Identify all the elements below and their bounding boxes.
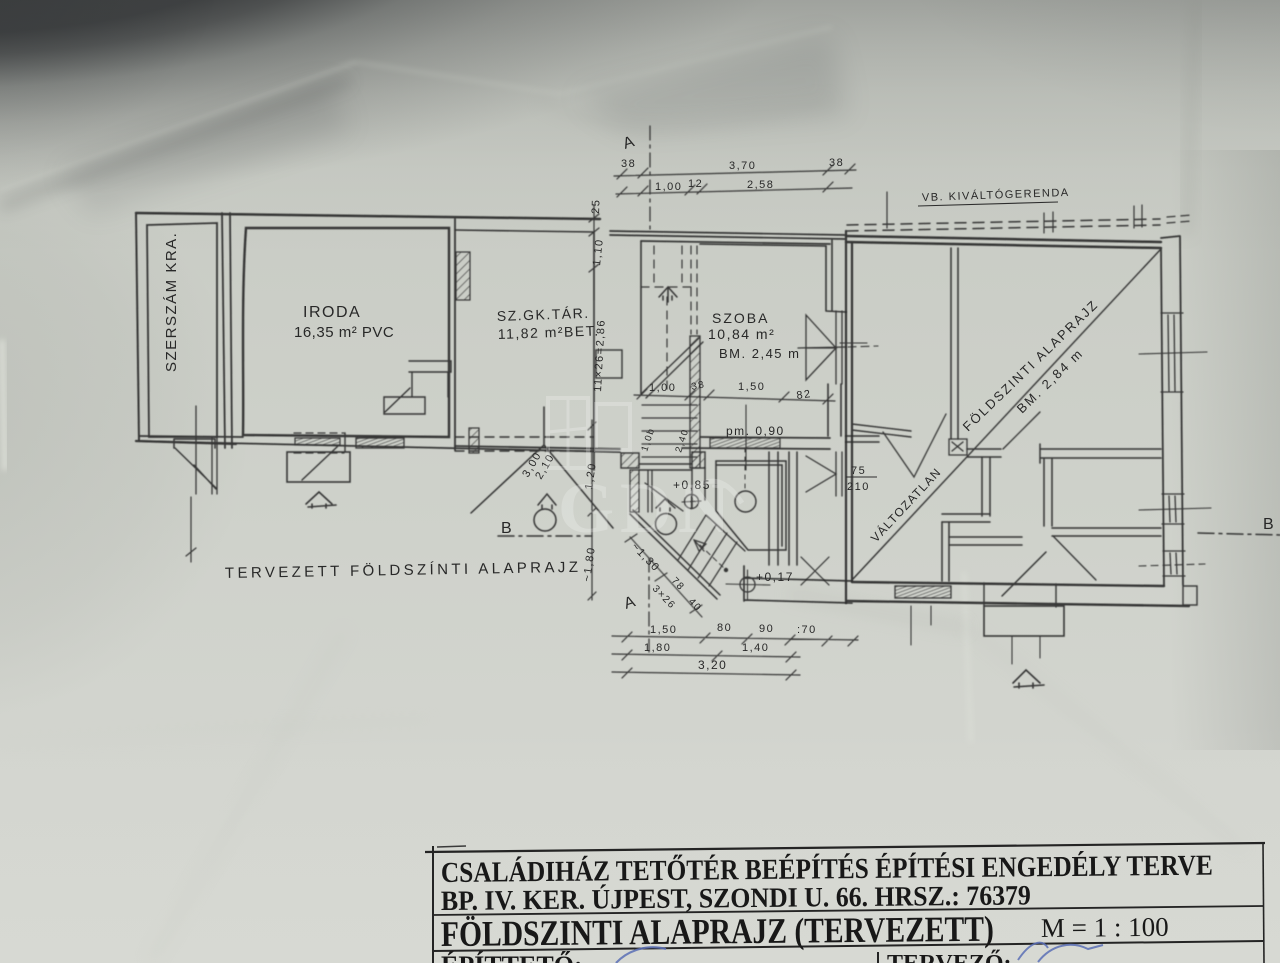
- svg-text:B: B: [501, 520, 513, 537]
- svg-text:80: 80: [717, 622, 732, 634]
- svg-text:3,70: 3,70: [729, 160, 756, 172]
- svg-text:210: 210: [847, 481, 870, 493]
- svg-text:38: 38: [829, 157, 844, 169]
- svg-text:M = 1 : 100: M = 1 : 100: [1041, 912, 1169, 943]
- svg-text:12: 12: [688, 178, 703, 190]
- svg-text:1,40: 1,40: [742, 642, 769, 654]
- svg-text:82: 82: [796, 388, 813, 402]
- svg-text:B: B: [1263, 516, 1275, 533]
- svg-text:10,84 m²: 10,84 m²: [708, 326, 775, 342]
- svg-text:2,58: 2,58: [747, 179, 774, 191]
- svg-text:1,00: 1,00: [655, 181, 682, 193]
- svg-text:GDN: GDN: [558, 468, 736, 548]
- svg-text:1,00: 1,00: [649, 382, 676, 394]
- svg-text:16,35 m² PVC: 16,35 m² PVC: [294, 324, 394, 341]
- svg-text:1,80: 1,80: [644, 642, 671, 654]
- svg-text:3,20: 3,20: [698, 658, 727, 672]
- svg-text:38: 38: [621, 158, 636, 170]
- svg-text:IRODA: IRODA: [303, 304, 361, 321]
- svg-text:90: 90: [759, 623, 774, 635]
- svg-text:SZ.GK.TÁR.: SZ.GK.TÁR.: [497, 305, 590, 324]
- svg-text:1,50: 1,50: [650, 624, 677, 636]
- svg-text:FÖLDSZINTI ALAPRAJZ (TERVEZETT: FÖLDSZINTI ALAPRAJZ (TERVEZETT): [441, 909, 994, 954]
- svg-text:25: 25: [590, 198, 603, 214]
- svg-text:75: 75: [851, 465, 866, 477]
- svg-text:SZOBA: SZOBA: [712, 310, 769, 326]
- svg-text:BM. 2,45 m: BM. 2,45 m: [719, 346, 800, 361]
- svg-text:TERVEZŐ:: TERVEZŐ:: [887, 950, 1012, 963]
- svg-text:SZERSZÁM KRA.: SZERSZÁM KRA.: [163, 232, 180, 372]
- svg-text:+0,17: +0,17: [756, 570, 794, 584]
- svg-text::70: :70: [797, 624, 817, 636]
- svg-text:1,50: 1,50: [738, 381, 765, 393]
- svg-text:ÉPÍTTETŐ:: ÉPÍTTETŐ:: [441, 951, 583, 963]
- svg-text:pm. 0,90: pm. 0,90: [726, 424, 785, 438]
